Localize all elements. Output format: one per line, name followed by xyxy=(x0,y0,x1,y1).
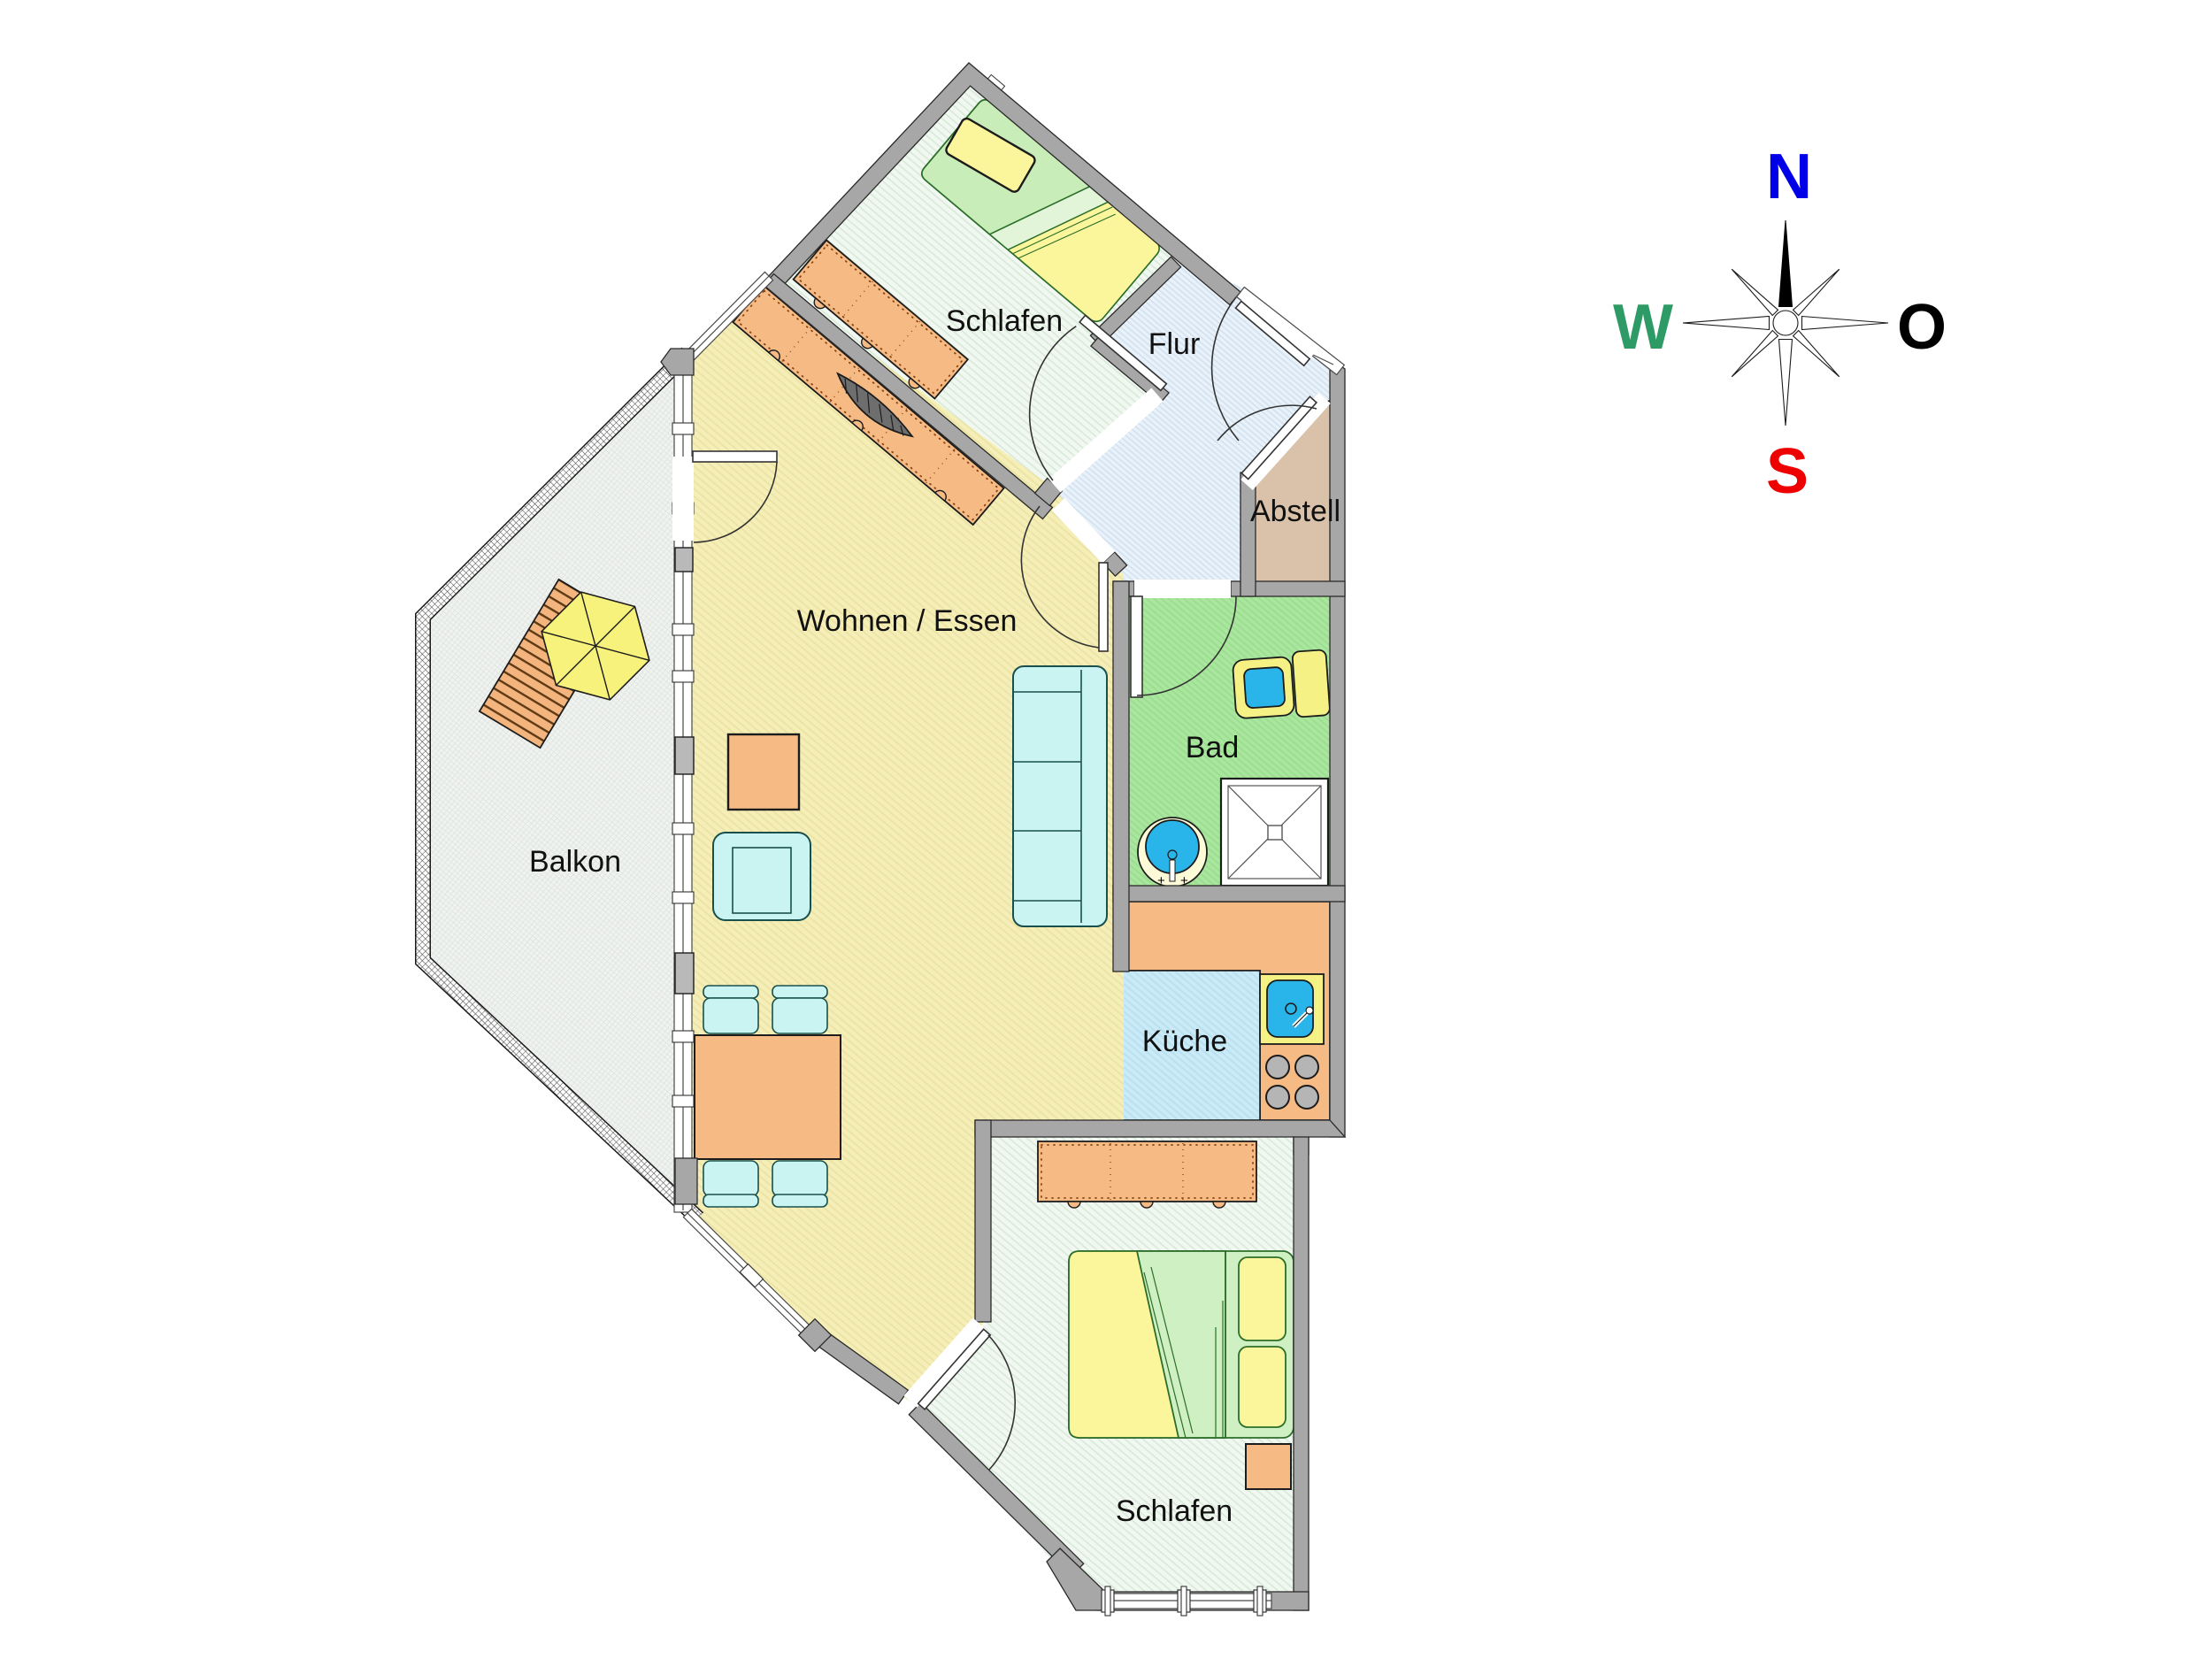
svg-text:Schlafen: Schlafen xyxy=(946,304,1063,338)
svg-text:W: W xyxy=(1613,292,1673,363)
svg-text:O: O xyxy=(1897,292,1947,363)
svg-text:Abstell: Abstell xyxy=(1250,495,1340,528)
svg-text:Balkon: Balkon xyxy=(529,845,621,879)
svg-text:S: S xyxy=(1766,436,1809,507)
svg-text:Wohnen / Essen: Wohnen / Essen xyxy=(797,604,1018,638)
svg-text:Flur: Flur xyxy=(1148,327,1201,361)
svg-text:Schlafen: Schlafen xyxy=(1116,1494,1233,1528)
svg-text:Küche: Küche xyxy=(1142,1025,1227,1058)
svg-text:Bad: Bad xyxy=(1186,731,1240,764)
svg-text:N: N xyxy=(1766,142,1812,212)
